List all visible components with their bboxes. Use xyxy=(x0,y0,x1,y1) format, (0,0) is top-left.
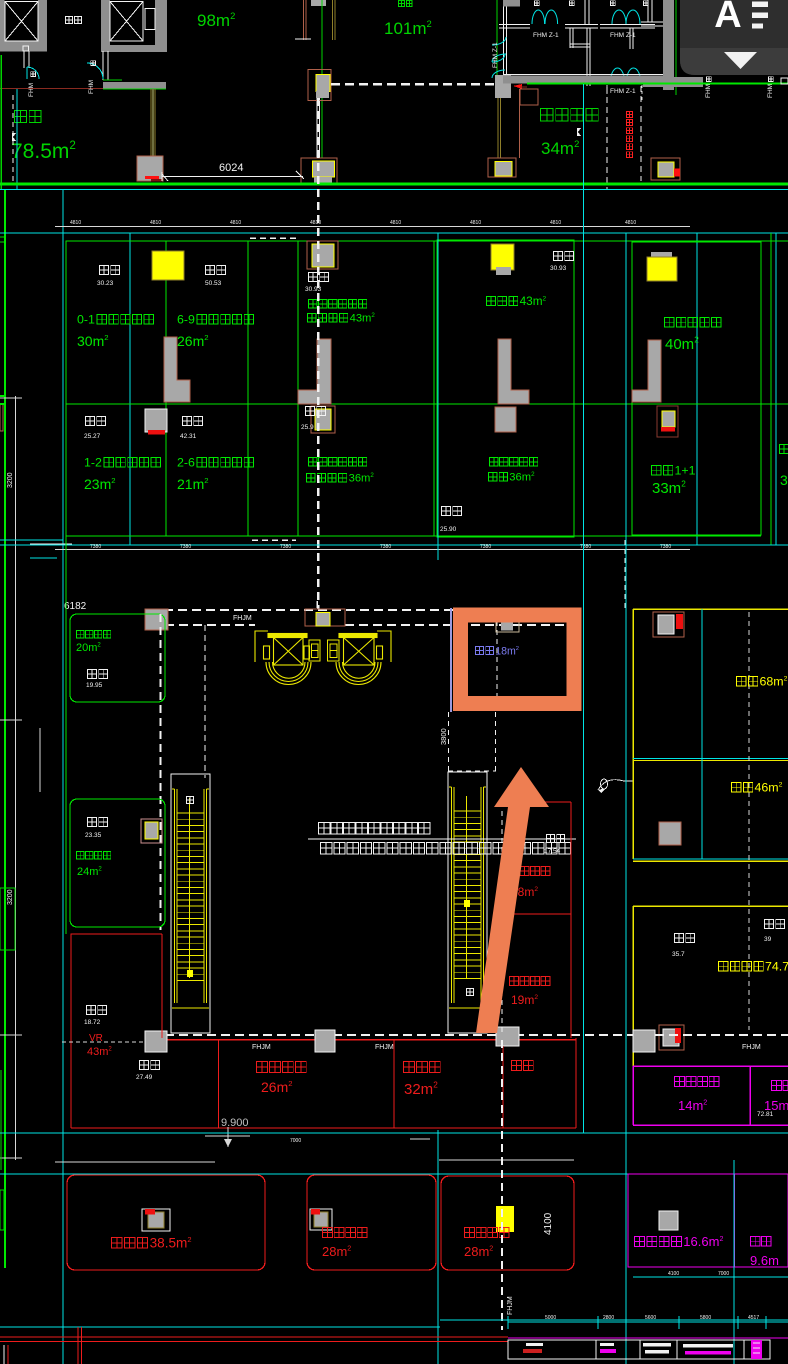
svg-text:7380: 7380 xyxy=(90,544,101,550)
svg-text:1-2: 1-2 xyxy=(84,456,102,470)
svg-text:6024: 6024 xyxy=(219,162,243,174)
svg-text:38.5m2: 38.5m2 xyxy=(150,1235,192,1250)
svg-text:4100: 4100 xyxy=(543,1212,554,1235)
svg-text:68m2: 68m2 xyxy=(760,675,788,689)
svg-text:FHM Z-1: FHM Z-1 xyxy=(492,42,499,68)
svg-text:2-6: 2-6 xyxy=(177,456,195,470)
svg-text:7380: 7380 xyxy=(180,544,191,550)
svg-text:7380: 7380 xyxy=(580,544,591,550)
svg-text:18.72: 18.72 xyxy=(84,1019,101,1026)
svg-text:30.93: 30.93 xyxy=(550,265,567,272)
svg-text:FHM Z-1: FHM Z-1 xyxy=(610,32,636,39)
svg-text:25.90: 25.90 xyxy=(440,526,457,533)
svg-text:28m2: 28m2 xyxy=(322,1244,351,1260)
svg-text:25.27: 25.27 xyxy=(84,433,101,440)
svg-text:98m2: 98m2 xyxy=(197,10,235,30)
svg-text:2800: 2800 xyxy=(603,1315,614,1321)
svg-text:7380: 7380 xyxy=(280,544,291,550)
svg-text:78.5m2: 78.5m2 xyxy=(11,139,76,163)
svg-text:19m2: 19m2 xyxy=(511,993,538,1007)
svg-text:19.95: 19.95 xyxy=(86,682,103,689)
svg-text:4810: 4810 xyxy=(470,220,481,226)
svg-text:46m2: 46m2 xyxy=(755,781,783,795)
svg-text:28m2: 28m2 xyxy=(464,1244,493,1260)
svg-text:FHJM: FHJM xyxy=(252,1044,271,1051)
svg-text:3: 3 xyxy=(780,472,788,488)
svg-text:35.7: 35.7 xyxy=(672,951,685,958)
svg-text:FHM Z-1: FHM Z-1 xyxy=(610,88,636,95)
svg-text:A: A xyxy=(714,0,741,36)
svg-text:7380: 7380 xyxy=(480,544,491,550)
svg-text:FHM: FHM xyxy=(705,84,712,98)
svg-text:3800: 3800 xyxy=(439,728,448,745)
svg-text:FHM: FHM xyxy=(767,84,774,98)
svg-text:FHJM: FHJM xyxy=(233,615,252,622)
svg-text:27.49: 27.49 xyxy=(136,1074,153,1081)
svg-text:39: 39 xyxy=(764,936,772,943)
svg-text:FHM: FHM xyxy=(88,80,95,94)
svg-text:23.35: 23.35 xyxy=(85,832,102,839)
svg-text:4517: 4517 xyxy=(748,1315,759,1321)
svg-text:5600: 5600 xyxy=(645,1315,656,1321)
svg-text:FHJM: FHJM xyxy=(742,1044,761,1051)
svg-text:4810: 4810 xyxy=(550,220,561,226)
svg-text:3200: 3200 xyxy=(7,472,14,488)
svg-text:3200: 3200 xyxy=(7,889,14,905)
svg-text:40m2: 40m2 xyxy=(665,336,699,353)
svg-text:30.23: 30.23 xyxy=(97,280,114,287)
svg-text:32m2: 32m2 xyxy=(404,1081,438,1098)
svg-text:4810: 4810 xyxy=(625,220,636,226)
svg-text:4810: 4810 xyxy=(310,220,321,226)
svg-text:101m2: 101m2 xyxy=(384,18,432,38)
svg-text:14m2: 14m2 xyxy=(678,1098,707,1114)
svg-text:FHM Z-1: FHM Z-1 xyxy=(533,32,559,39)
svg-text:FHJM: FHJM xyxy=(507,1296,514,1315)
svg-text:FHJM: FHJM xyxy=(375,1044,394,1051)
svg-text:7380: 7380 xyxy=(380,544,391,550)
svg-text:50.53: 50.53 xyxy=(205,280,222,287)
svg-text:18m2: 18m2 xyxy=(495,645,519,657)
svg-text:4810: 4810 xyxy=(230,220,241,226)
svg-text:42.31: 42.31 xyxy=(180,433,197,440)
svg-text:72.81: 72.81 xyxy=(757,1111,774,1118)
svg-text:6-9: 6-9 xyxy=(177,313,195,327)
svg-text:43m2: 43m2 xyxy=(520,294,547,308)
svg-text:17.54: 17.54 xyxy=(544,848,561,855)
svg-text:FHM: FHM xyxy=(28,83,35,97)
svg-text:7000: 7000 xyxy=(290,1138,301,1144)
svg-text:4810: 4810 xyxy=(70,220,81,226)
svg-text:7000: 7000 xyxy=(718,1271,729,1277)
svg-text:74.7m: 74.7m xyxy=(765,960,788,974)
svg-text:26m2: 26m2 xyxy=(177,333,209,349)
svg-text:33m2: 33m2 xyxy=(652,480,686,497)
svg-text:0-1: 0-1 xyxy=(77,313,95,327)
svg-text:34m2: 34m2 xyxy=(541,138,579,158)
svg-text:21m2: 21m2 xyxy=(177,476,209,492)
svg-text:25.9: 25.9 xyxy=(301,424,314,431)
svg-text:4100: 4100 xyxy=(668,1271,679,1277)
svg-text:4810: 4810 xyxy=(150,220,161,226)
svg-text:23m2: 23m2 xyxy=(84,476,116,492)
svg-text:4810: 4810 xyxy=(390,220,401,226)
svg-text:1+1: 1+1 xyxy=(675,464,696,478)
svg-text:7380: 7380 xyxy=(660,544,671,550)
svg-text:30m2: 30m2 xyxy=(77,333,109,349)
svg-text:26m2: 26m2 xyxy=(261,1079,293,1095)
svg-text:6182: 6182 xyxy=(64,601,87,612)
svg-text:16.6m2: 16.6m2 xyxy=(683,1234,723,1249)
svg-text:9.6m: 9.6m xyxy=(750,1253,779,1268)
svg-text:5000: 5000 xyxy=(545,1315,556,1321)
svg-text:9.900: 9.900 xyxy=(221,1117,249,1129)
svg-text:5800: 5800 xyxy=(700,1315,711,1321)
